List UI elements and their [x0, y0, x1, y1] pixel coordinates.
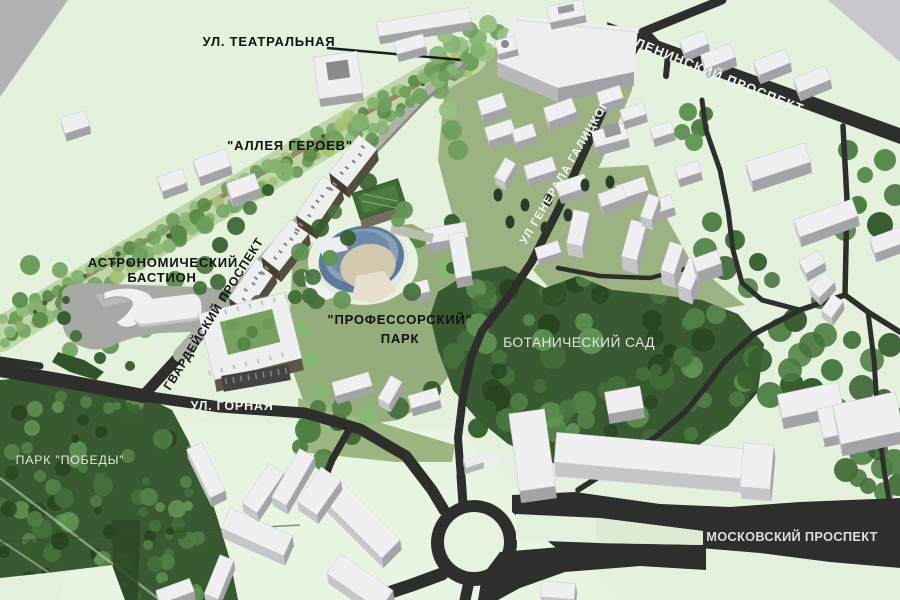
svg-text:БАСТИОН: БАСТИОН: [127, 270, 196, 285]
svg-text:МОСКОВСКИЙ ПРОСПЕКТ: МОСКОВСКИЙ ПРОСПЕКТ: [706, 529, 878, 544]
svg-text:"АЛЛЕЯ ГЕРОЕВ": "АЛЛЕЯ ГЕРОЕВ": [227, 138, 353, 153]
svg-text:УЛ. ГОРНАЯ: УЛ. ГОРНАЯ: [190, 399, 273, 413]
svg-text:УЛ. ТЕАТРАЛЬНАЯ: УЛ. ТЕАТРАЛЬНАЯ: [203, 34, 336, 49]
svg-text:АСТРОНОМИЧЕСКИЙ: АСТРОНОМИЧЕСКИЙ: [88, 255, 238, 270]
svg-text:БОТАНИЧЕСКИЙ САД: БОТАНИЧЕСКИЙ САД: [503, 333, 655, 350]
svg-text:ПАРК: ПАРК: [381, 331, 420, 346]
svg-text:"ПРОФЕССОРСКИЙ": "ПРОФЕССОРСКИЙ": [328, 312, 473, 327]
svg-text:ПАРК "ПОБЕДЫ": ПАРК "ПОБЕДЫ": [16, 453, 125, 467]
